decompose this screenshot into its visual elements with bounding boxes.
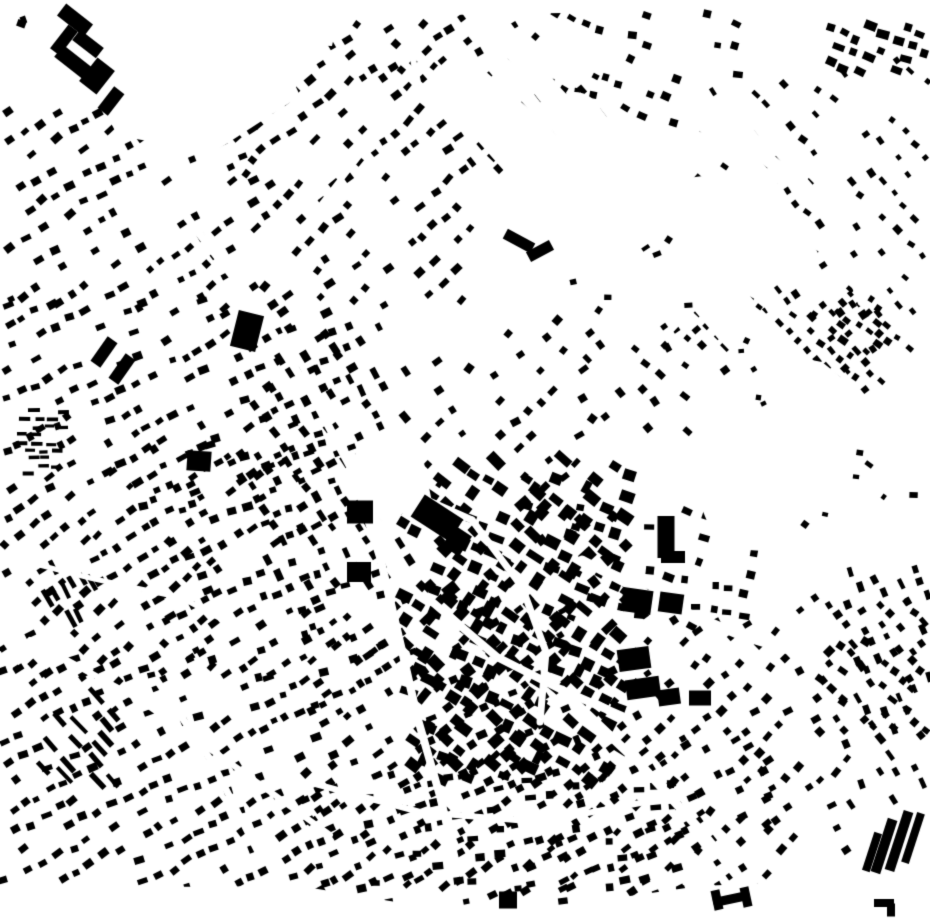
figure-ground-canvas (0, 0, 930, 924)
figure-ground-map (0, 0, 930, 924)
